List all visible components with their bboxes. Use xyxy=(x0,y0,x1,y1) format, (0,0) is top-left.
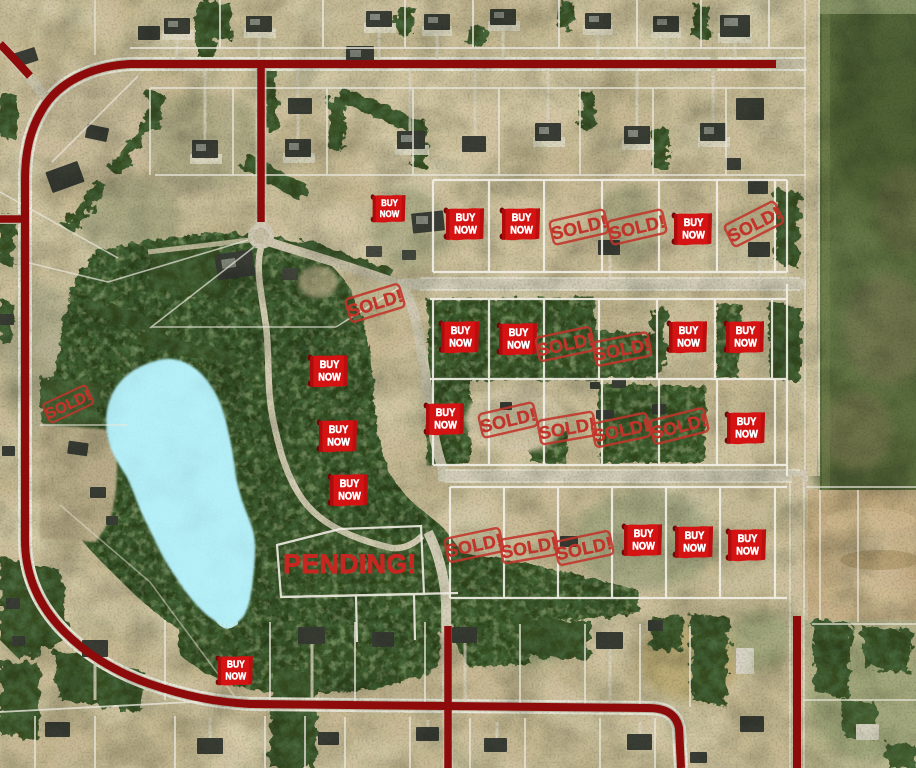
svg-text:PENDING!: PENDING! xyxy=(283,549,417,579)
